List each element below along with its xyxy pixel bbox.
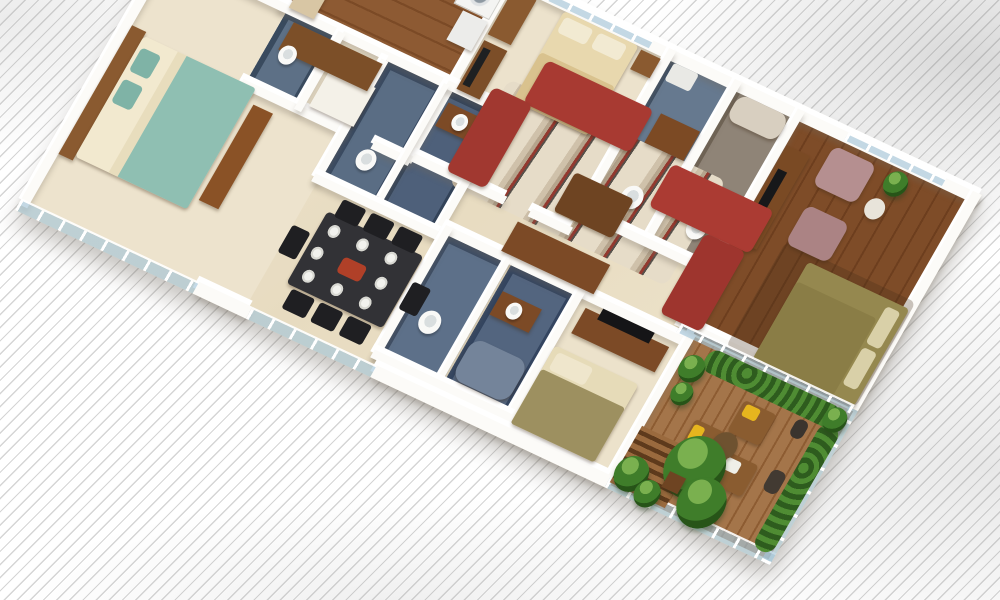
floor-plan: [15, 0, 982, 565]
render-canvas: [0, 0, 1000, 600]
